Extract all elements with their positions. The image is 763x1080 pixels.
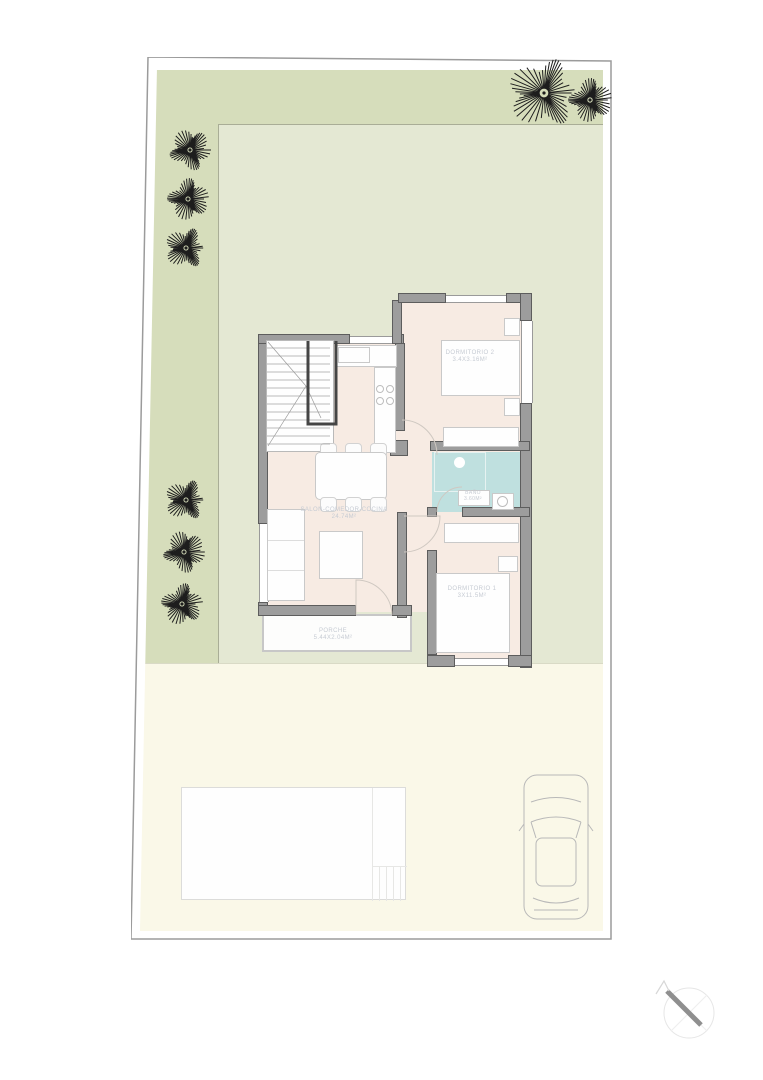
window — [455, 658, 508, 666]
room-name: DORMITORIO 1 — [422, 586, 522, 593]
room-name: DORMITORIO 2 — [420, 350, 520, 357]
garden-strip-top — [131, 70, 603, 124]
pool — [181, 787, 406, 900]
room-dims: 3.4x3.16m² — [420, 357, 520, 364]
stove-burner — [386, 397, 394, 405]
wall — [397, 512, 407, 618]
kitchen-sink — [338, 347, 370, 363]
room-dims: 3.60m² — [443, 496, 503, 502]
wall — [508, 655, 532, 667]
wall — [398, 293, 446, 303]
wardrobe — [444, 523, 519, 543]
room-name: PORCHE — [283, 628, 383, 635]
porch-label: PORCHE 5.44x2.04m² — [283, 628, 383, 642]
window — [350, 336, 392, 344]
living-room-label: SALON-COMEDOR-COCINA 24.74m² — [284, 507, 404, 521]
staircase — [266, 340, 334, 452]
wall — [427, 507, 437, 517]
dining-table — [315, 452, 387, 500]
plot-content: SALON-COMEDOR-COCINA 24.74m² DORMITORIO … — [131, 57, 613, 940]
room-name: SALON-COMEDOR-COCINA — [284, 507, 404, 514]
bed-2 — [441, 340, 520, 396]
floor-plan-page: SALON-COMEDOR-COCINA 24.74m² DORMITORIO … — [0, 0, 763, 1080]
room-dims: 3x11.5m² — [422, 593, 522, 600]
wall — [392, 605, 412, 616]
bathroom-label: BAÑO 3.60m² — [443, 490, 503, 502]
window — [521, 321, 533, 403]
north-arrow-icon — [656, 981, 714, 1038]
stove-burner — [376, 385, 384, 393]
wardrobe — [443, 427, 519, 447]
wall — [392, 300, 402, 344]
coffee-table — [319, 531, 363, 579]
wall — [258, 605, 356, 616]
bed-1 — [436, 573, 510, 653]
wall — [427, 655, 455, 667]
nightstand — [504, 318, 520, 336]
sofa — [267, 509, 305, 601]
room-dims: 5.44x2.04m² — [283, 635, 383, 642]
bedroom-1-label: DORMITORIO 1 3x11.5m² — [422, 586, 522, 600]
kitchen-counter-side — [374, 367, 396, 453]
plot: SALON-COMEDOR-COCINA 24.74m² DORMITORIO … — [131, 57, 613, 940]
stove-burner — [386, 385, 394, 393]
window — [446, 295, 506, 303]
nightstand — [498, 556, 518, 572]
room-dims: 24.74m² — [284, 514, 404, 521]
stove-burner — [376, 397, 384, 405]
nightstand — [504, 398, 520, 416]
bedroom-2-label: DORMITORIO 2 3.4x3.16m² — [420, 350, 520, 364]
wall — [520, 293, 532, 321]
shower-head — [454, 457, 465, 468]
